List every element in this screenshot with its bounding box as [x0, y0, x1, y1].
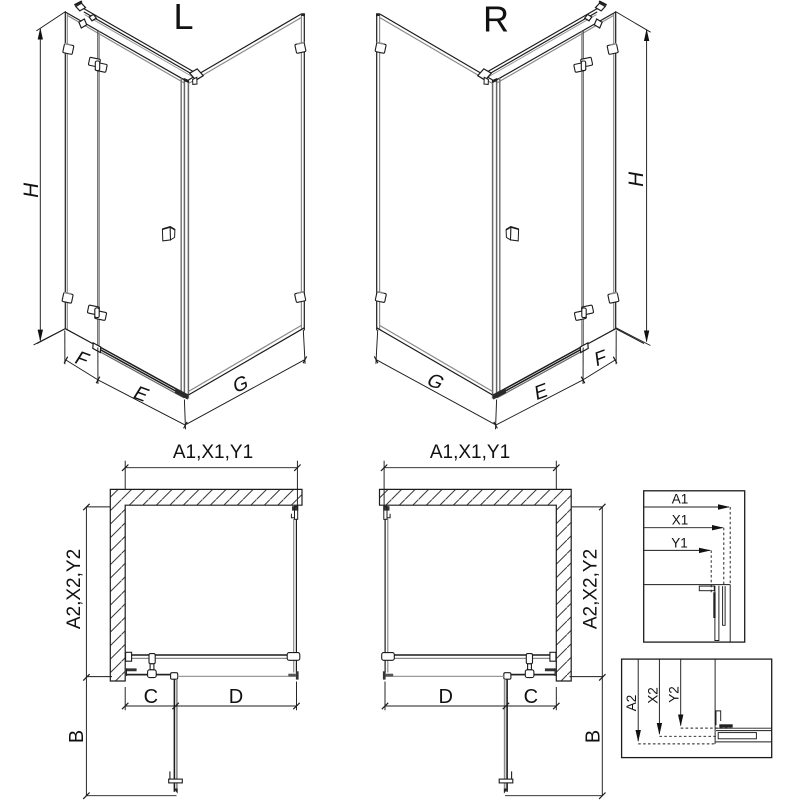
- svg-text:A1: A1: [672, 492, 689, 507]
- svg-text:D: D: [438, 686, 452, 708]
- svg-text:A1,X1,Y1: A1,X1,Y1: [430, 442, 510, 463]
- svg-text:X1: X1: [672, 513, 689, 528]
- svg-text:C: C: [144, 686, 158, 708]
- svg-text:Y1: Y1: [671, 535, 688, 550]
- svg-text:A2: A2: [624, 695, 639, 712]
- svg-text:B: B: [583, 730, 605, 743]
- svg-text:C: C: [524, 686, 538, 708]
- svg-text:Y2: Y2: [667, 686, 682, 703]
- svg-text:A1,X1,Y1: A1,X1,Y1: [173, 442, 253, 463]
- svg-text:X2: X2: [645, 687, 660, 704]
- svg-text:D: D: [229, 686, 243, 708]
- svg-text:A2,X2,Y2: A2,X2,Y2: [64, 549, 85, 629]
- svg-text:A2,X2,Y2: A2,X2,Y2: [581, 549, 602, 629]
- svg-text:B: B: [66, 730, 88, 743]
- svg-text:R: R: [483, 0, 509, 40]
- svg-text:L: L: [173, 0, 193, 37]
